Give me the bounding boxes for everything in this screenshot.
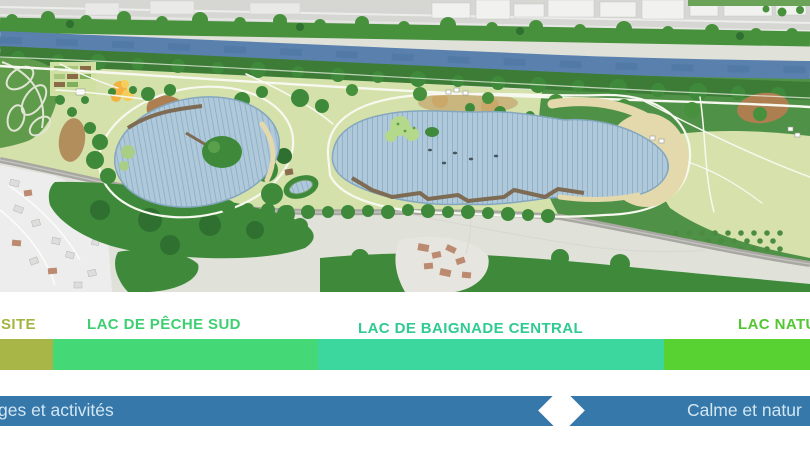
ambiance-bar: ges et activités Calme et natur	[0, 396, 810, 426]
ambiance-label-right: Calme et natur	[687, 400, 802, 421]
masterplan-slide: SITE LAC DE PÊCHE SUD LAC DE BAIGNADE CE…	[0, 0, 810, 455]
zone-label-site: SITE	[1, 316, 36, 333]
lake-island	[202, 136, 242, 168]
zone-label-lac-baignade-central: LAC DE BAIGNADE CENTRAL	[358, 320, 583, 337]
zone-bar-lac-naturel	[664, 339, 810, 370]
diamond-divider-icon	[538, 387, 585, 434]
zone-bar-site	[0, 339, 53, 370]
lac-baignade-central	[332, 102, 688, 207]
ambiance-label-left: ges et activités	[0, 400, 114, 421]
zone-label-lac-peche-sud: LAC DE PÊCHE SUD	[87, 316, 241, 333]
masterplan-map	[0, 0, 810, 292]
aerial-plan-svg	[0, 0, 810, 292]
zone-label-lac-naturel: LAC NATU	[738, 316, 810, 333]
zone-bar-lac-baignade-central	[318, 339, 664, 370]
zone-bar-lac-peche-sud	[53, 339, 318, 370]
